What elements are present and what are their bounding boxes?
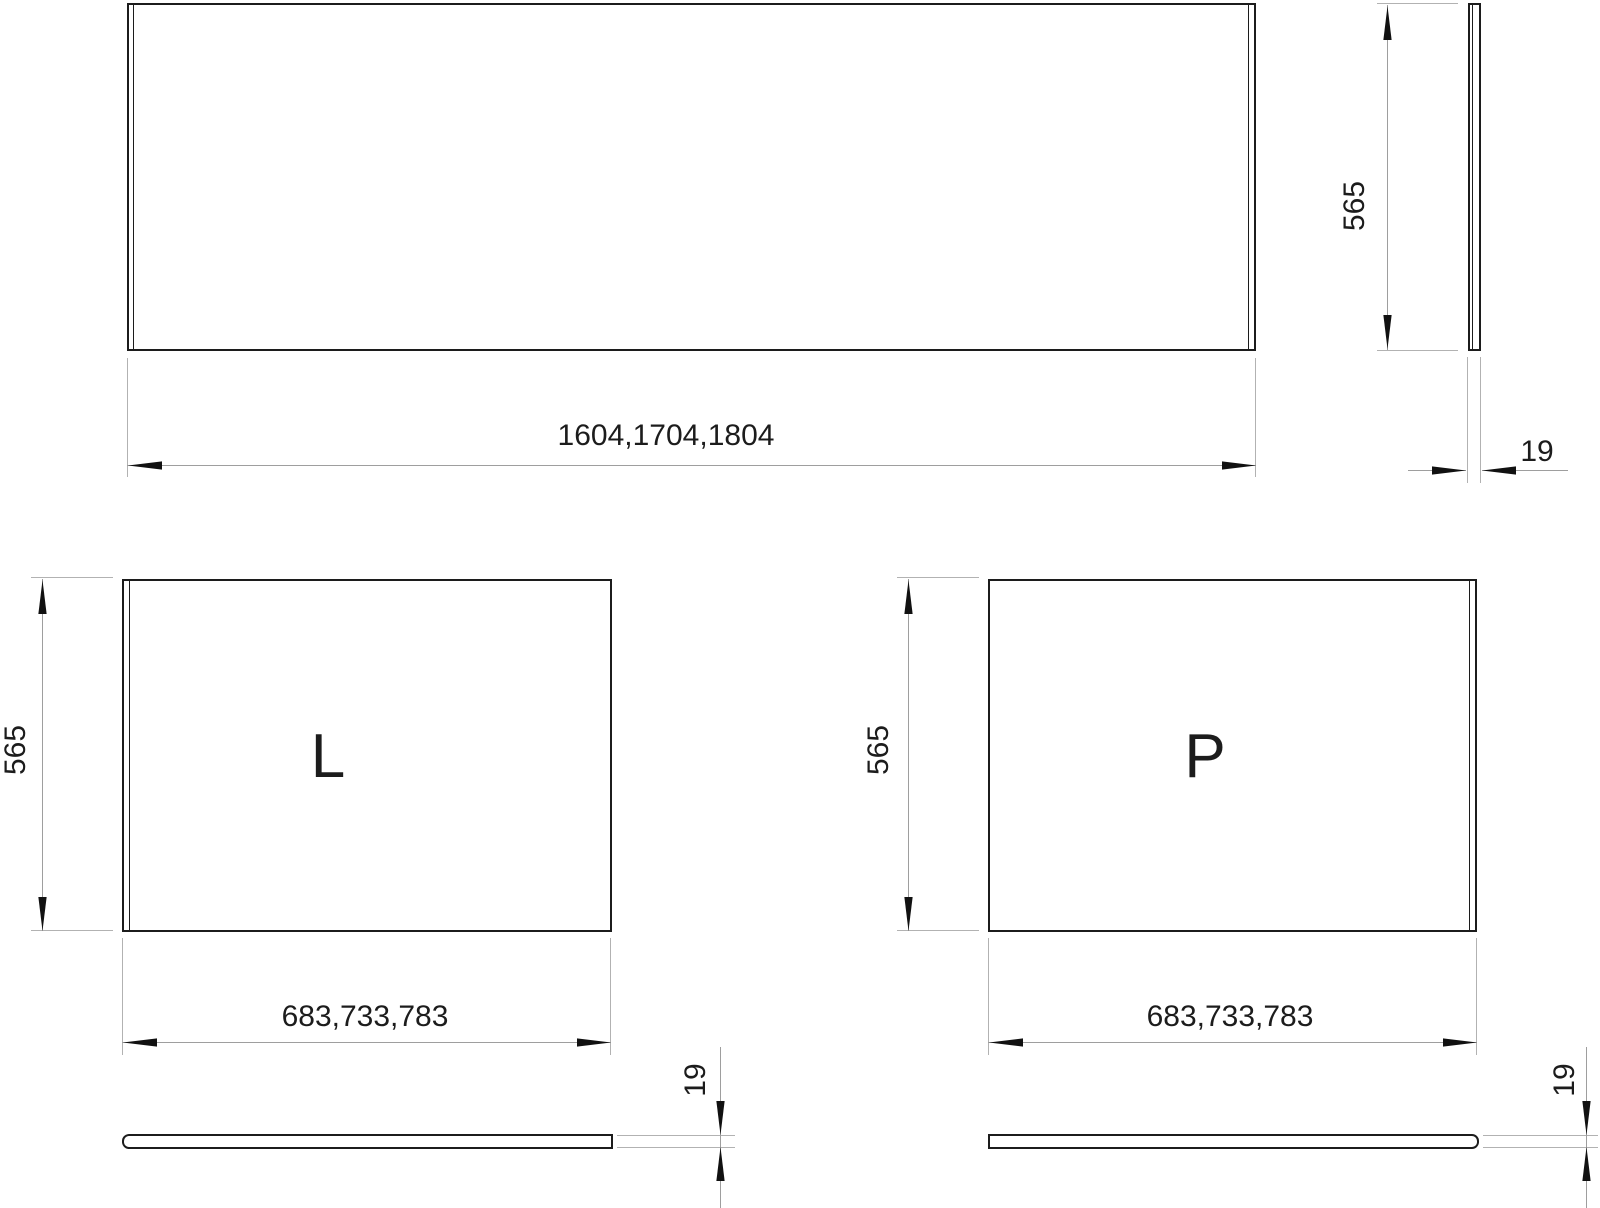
panel-p-width-extension-line-left — [988, 938, 989, 1055]
arrowhead-up-icon — [904, 580, 913, 614]
panel-l-edge-line — [129, 581, 130, 930]
arrowhead-down-icon — [1383, 315, 1392, 349]
panel-p-thickness-extension-line-bottom — [1483, 1147, 1598, 1148]
front-thickness-extension-line-left — [1467, 357, 1468, 483]
arrowhead-right-icon — [1222, 461, 1256, 470]
arrowhead-right-icon — [1432, 466, 1466, 475]
panel-l-thickness-extension-line-bottom — [617, 1147, 735, 1148]
front-view-left-edge-line — [133, 5, 134, 349]
front-view-right-edge-line — [1248, 5, 1249, 349]
front-width-dimension-label: 1604,1704,1804 — [466, 420, 866, 452]
front-width-extension-line-right — [1255, 358, 1256, 477]
panel-l-width-extension-line-left — [122, 938, 123, 1055]
front-height-dimension-label: 565 — [1338, 146, 1372, 266]
front-height-extension-line-bottom — [1377, 350, 1458, 351]
panel-p-thickness-dimension-label: 19 — [1548, 1020, 1582, 1140]
front-side-view-outline — [1468, 3, 1481, 351]
arrowhead-right-icon — [1443, 1038, 1477, 1047]
panel-p-width-dimension-label: 683,733,783 — [1030, 1001, 1430, 1033]
panel-p-height-extension-line-bottom — [897, 930, 979, 931]
arrowhead-down-icon — [38, 897, 47, 931]
panel-p-width-dimension-line — [988, 1042, 1477, 1043]
front-height-extension-line-top — [1377, 3, 1458, 4]
arrowhead-up-icon — [1383, 6, 1392, 40]
panel-l-height-extension-line-bottom — [31, 930, 113, 931]
front-width-dimension-line — [127, 465, 1256, 466]
panel-p-height-dimension-label: 565 — [862, 690, 896, 810]
arrowhead-down-icon — [716, 1101, 725, 1135]
arrowhead-left-icon — [128, 461, 162, 470]
panel-p-label: P — [1145, 723, 1265, 791]
technical-drawing-canvas: 1604,1704,1804 565 19 L 565 683,733,783 … — [0, 0, 1600, 1208]
panel-l-label: L — [268, 723, 388, 791]
arrowhead-down-icon — [904, 897, 913, 931]
panel-p-top-view-outline — [988, 1134, 1479, 1149]
arrowhead-right-icon — [577, 1038, 611, 1047]
panel-l-width-dimension-line — [122, 1042, 611, 1043]
arrowhead-left-icon — [123, 1038, 157, 1047]
panel-l-height-dimension-line — [42, 579, 43, 931]
panel-l-thickness-dimension-label: 19 — [679, 1020, 713, 1140]
panel-l-width-dimension-label: 683,733,783 — [165, 1001, 565, 1033]
arrowhead-down-icon — [1582, 1101, 1591, 1135]
arrowhead-up-icon — [38, 580, 47, 614]
panel-l-height-dimension-label: 565 — [0, 690, 33, 810]
panel-p-height-extension-line-top — [897, 577, 979, 578]
panel-l-top-view-outline — [122, 1134, 613, 1149]
panel-p-height-dimension-line — [908, 579, 909, 931]
front-height-dimension-line — [1387, 5, 1388, 350]
panel-l-thickness-extension-line-top — [617, 1135, 735, 1136]
panel-l-width-extension-line-right — [610, 938, 611, 1055]
panel-p-width-extension-line-right — [1476, 938, 1477, 1055]
arrowhead-left-icon — [989, 1038, 1023, 1047]
panel-l-height-extension-line-top — [31, 577, 113, 578]
arrowhead-up-icon — [1582, 1147, 1591, 1181]
front-width-extension-line-left — [127, 358, 128, 477]
front-thickness-dimension-label: 19 — [1477, 436, 1597, 468]
front-side-view-inner-line — [1472, 5, 1473, 349]
front-view-outline — [127, 3, 1256, 351]
arrowhead-up-icon — [716, 1147, 725, 1181]
panel-p-edge-line — [1469, 581, 1470, 930]
